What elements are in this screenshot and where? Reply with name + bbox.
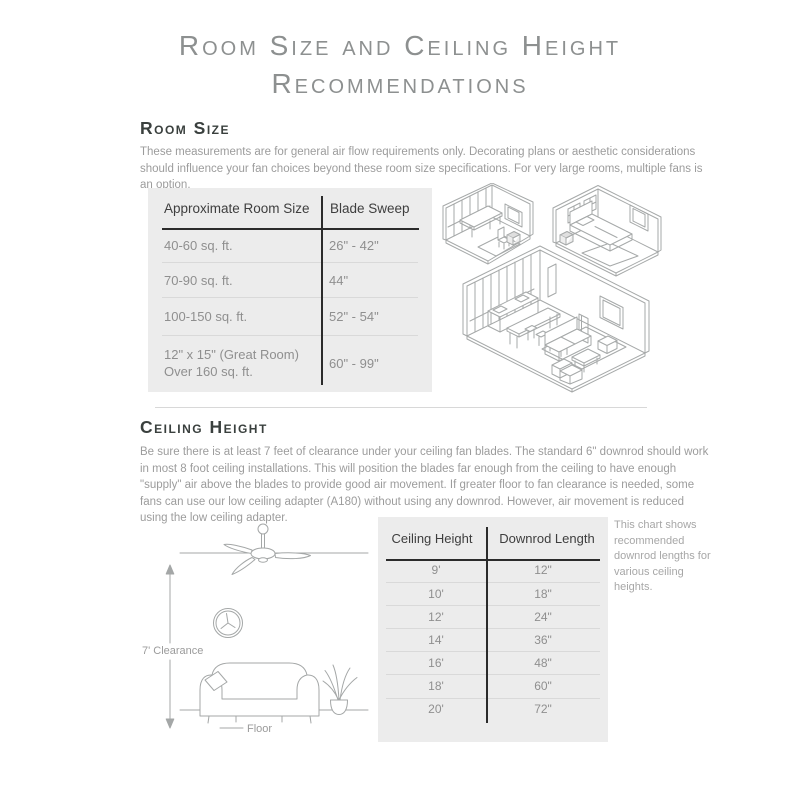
ceiling-height-heading: Ceiling Height	[140, 417, 268, 438]
room-size-cell: 12" x 15" (Great Room) Over 160 sq. ft.	[162, 346, 321, 380]
office-room-drawing	[443, 183, 533, 264]
table-row: 20' 72"	[386, 698, 600, 721]
downrod-length-cell: 12"	[486, 562, 600, 579]
clearance-illustration: 7' Clearance Floor	[130, 519, 370, 745]
ceiling-height-cell: 20'	[386, 701, 486, 718]
blade-sweep-column-header: Blade Sweep	[321, 201, 410, 216]
downrod-length-column-header: Downrod Length	[486, 531, 608, 546]
ceiling-height-cell: 10'	[386, 586, 486, 603]
downrod-length-cell: 72"	[486, 701, 600, 718]
chart-note: This chart shows recommended downrod len…	[614, 518, 718, 596]
blade-sweep-cell: 52" - 54"	[321, 308, 379, 325]
blade-sweep-cell: 60" - 99"	[321, 355, 379, 372]
table-row: 14' 36"	[386, 628, 600, 651]
couch-icon	[200, 663, 319, 723]
ceiling-height-cell: 18'	[386, 678, 486, 695]
page-title-line2: Recommendations	[271, 68, 528, 99]
table-header-row: Approximate Room Size Blade Sweep	[148, 188, 432, 228]
table-row: 10' 18"	[386, 582, 600, 605]
table-row: 9' 12"	[386, 559, 600, 582]
great-room-window	[600, 296, 623, 329]
floor-label: Floor	[247, 723, 272, 735]
table-header-row: Ceiling Height Downrod Length	[378, 517, 608, 559]
plant-icon	[323, 665, 357, 715]
table-row: 16' 48"	[386, 651, 600, 674]
ceiling-height-cell: 9'	[386, 562, 486, 579]
bedroom-room-drawing	[553, 186, 661, 277]
column-divider-line	[321, 196, 323, 385]
blade-sweep-cell: 26" - 42"	[321, 237, 379, 254]
ceiling-height-description: Be sure there is at least 7 feet of clea…	[140, 444, 714, 527]
room-size-cell: 70-90 sq. ft.	[162, 272, 321, 289]
section-divider	[155, 407, 647, 408]
table-row: 100-150 sq. ft. 52" - 54"	[162, 297, 418, 335]
great-room-drawing	[463, 246, 649, 392]
ceiling-height-table: Ceiling Height Downrod Length 9' 12" 10'…	[378, 517, 608, 742]
great-room-door-slot	[548, 264, 556, 297]
table-row: 12' 24"	[386, 605, 600, 628]
infographic-page: Room Size and Ceiling HeightRecommendati…	[0, 0, 800, 800]
header-underline	[386, 559, 600, 561]
downrod-length-cell: 60"	[486, 678, 600, 695]
ottoman	[598, 336, 617, 354]
office-window	[505, 204, 522, 227]
room-size-column-header: Approximate Room Size	[164, 201, 321, 216]
ceiling-height-cell: 12'	[386, 609, 486, 626]
room-size-cell: 100-150 sq. ft.	[162, 308, 321, 325]
column-divider-line	[486, 527, 488, 723]
downrod-length-cell: 48"	[486, 655, 600, 672]
ceiling-height-column-header: Ceiling Height	[378, 531, 486, 546]
bedroom-nightstand	[560, 232, 573, 246]
isometric-rooms-illustration	[430, 183, 705, 397]
ceiling-height-cell: 16'	[386, 655, 486, 672]
office-side-table	[507, 232, 520, 246]
blade-sweep-cell: 44"	[321, 272, 348, 289]
table-row: 70-90 sq. ft. 44"	[162, 262, 418, 297]
room-size-table: Approximate Room Size Blade Sweep 40-60 …	[148, 188, 432, 392]
downrod-length-cell: 36"	[486, 632, 600, 649]
office-desk	[460, 206, 502, 237]
table-row: 12" x 15" (Great Room) Over 160 sq. ft. …	[162, 335, 418, 390]
bed	[570, 201, 632, 251]
downrod-length-cell: 18"	[486, 586, 600, 603]
downrod-length-cell: 24"	[486, 609, 600, 626]
table-row: 40-60 sq. ft. 26" - 42"	[162, 228, 418, 262]
clearance-label: 7' Clearance	[142, 645, 203, 657]
page-title-line1: Room Size and Ceiling Height	[179, 30, 621, 61]
room-size-heading: Room Size	[140, 118, 230, 139]
clock-icon	[214, 609, 243, 638]
table-row: 18' 60"	[386, 674, 600, 697]
page-title: Room Size and Ceiling HeightRecommendati…	[0, 27, 800, 103]
ceiling-fan-icon	[224, 524, 311, 575]
ceiling-height-cell: 14'	[386, 632, 486, 649]
room-size-cell: 40-60 sq. ft.	[162, 237, 321, 254]
header-underline	[162, 228, 419, 230]
